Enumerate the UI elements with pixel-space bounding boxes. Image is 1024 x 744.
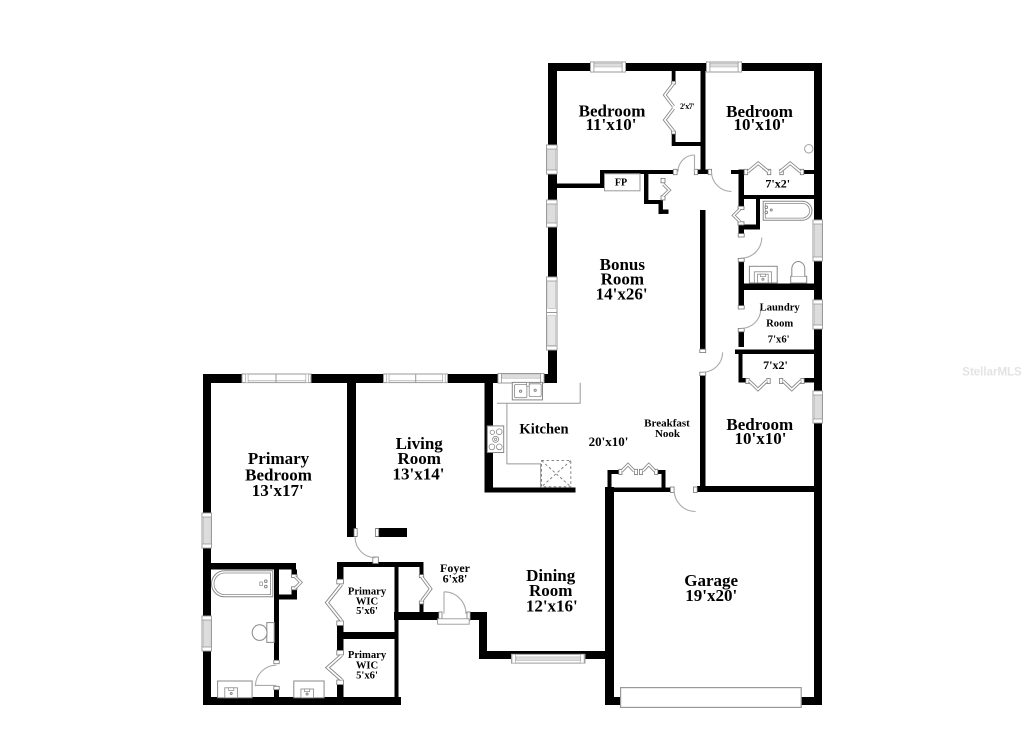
svg-text:7'x6': 7'x6' (768, 335, 790, 346)
svg-text:2'x7': 2'x7' (680, 102, 694, 111)
svg-text:5'x6': 5'x6' (356, 671, 378, 682)
svg-text:11'x10': 11'x10' (585, 115, 636, 134)
svg-text:13'x14': 13'x14' (393, 465, 445, 484)
svg-text:10'x10': 10'x10' (735, 429, 787, 448)
svg-text:5'x6': 5'x6' (356, 606, 378, 617)
svg-text:6'x8': 6'x8' (443, 572, 468, 586)
svg-text:StellarMLS: StellarMLS (962, 367, 1022, 379)
svg-text:12'x16': 12'x16' (526, 596, 578, 615)
svg-text:FP: FP (615, 178, 627, 189)
svg-text:10'x10': 10'x10' (734, 115, 786, 134)
svg-text:Room: Room (766, 319, 793, 330)
svg-text:19'x20': 19'x20' (685, 586, 737, 605)
svg-text:7'x2': 7'x2' (765, 177, 790, 191)
svg-text:7'x2': 7'x2' (763, 358, 788, 372)
svg-text:Laundry: Laundry (760, 302, 801, 313)
svg-text:14'x26': 14'x26' (596, 285, 648, 304)
svg-text:20'x10': 20'x10' (589, 434, 629, 449)
svg-text:Kitchen: Kitchen (519, 422, 568, 438)
svg-text:Nook: Nook (655, 428, 681, 440)
svg-text:13'x17': 13'x17' (252, 481, 304, 500)
svg-text:Primary: Primary (348, 650, 387, 661)
